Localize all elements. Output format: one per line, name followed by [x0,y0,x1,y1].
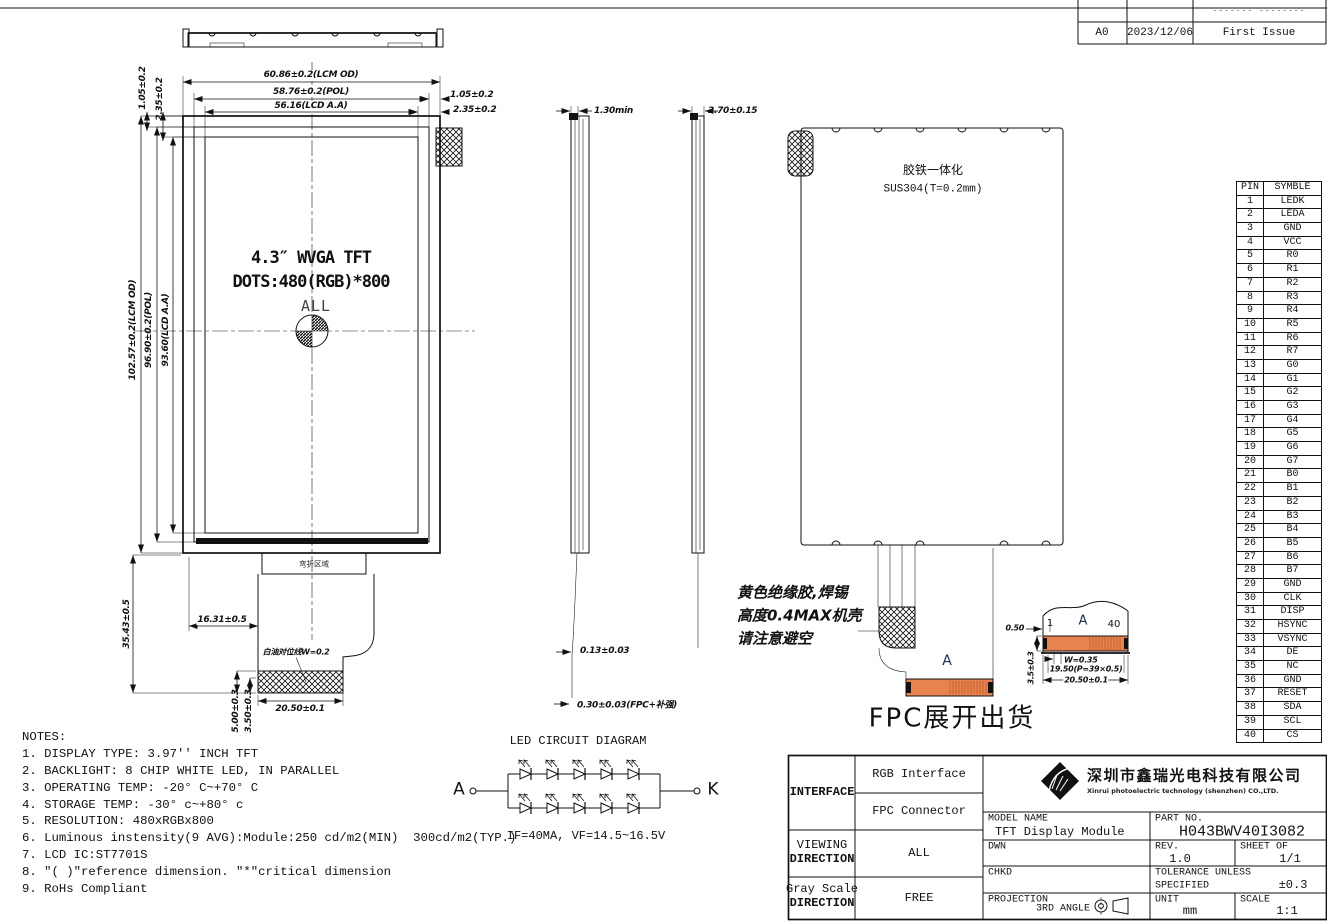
viewing-direction-value: ALL [908,846,930,860]
pin-number: 17 [1237,415,1264,428]
pin-symbol: VSYNC [1264,634,1321,647]
pin-number: 15 [1237,387,1264,400]
pin-number: 38 [1237,702,1264,715]
dim-pol-height: 96.90±0.2(POL) [144,292,154,368]
viewing-direction-label-2: DIRECTION [790,852,855,866]
notes-section: NOTES: 1. DISPLAY TYPE: 3.97'' INCH TFT2… [22,729,516,898]
pin-row: 4 VCC [1237,236,1321,250]
dim-fpc-left-offset: 16.31±0.5 [196,615,247,625]
pin-number: 32 [1237,620,1264,633]
pin-row: 32 HSYNC [1237,619,1321,633]
pin-number: 24 [1237,511,1264,524]
pin-symbol: DISP [1264,606,1321,619]
pin-number: 14 [1237,374,1264,387]
projection-symbol [1095,897,1128,915]
pin-symbol: R3 [1264,292,1321,305]
pin-symbol: B7 [1264,565,1321,578]
pin-row: 28 B7 [1237,564,1321,578]
white-line-note: 白油对位线W=0.2 [262,647,331,658]
pin-row: 2 LEDA [1237,208,1321,222]
pin-row: 29 GND [1237,578,1321,592]
note-line: 7. LCD IC:ST7701S [22,847,516,864]
tolerance-value: ±0.3 [1279,878,1308,892]
pin-number: 20 [1237,456,1264,469]
dim-right-inset-1: 1.05±0.2 [450,90,493,100]
pin-number: 33 [1237,634,1264,647]
pin-number: 36 [1237,675,1264,688]
pin-number: 25 [1237,524,1264,537]
dim-detail-pitch: 19.50(P=39×0.5) [1049,665,1124,674]
dim-fpc-stiffener-thickness: 0.30±0.03(FPC+补强) [577,698,677,711]
pin-row: 35 NC [1237,660,1321,674]
sheet-of-value: 1/1 [1279,852,1301,866]
pin-row: 1 LEDK [1237,195,1321,209]
pin-row: 33 VSYNC [1237,633,1321,647]
note-line: 6. Luminous instensity(9 AVG):Module:250… [22,830,516,847]
pin-row: 17 G4 [1237,414,1321,428]
top-strip-view [183,29,443,47]
pin-table-header: PIN SYMBLE [1237,182,1321,195]
dim-aa-width: 56.16(LCD A.A) [274,101,349,111]
revision-date: 2023/12/06 [1127,27,1193,39]
solder-note-line3: 请注意避空 [737,628,812,649]
unit-value: mm [1183,904,1197,918]
pin-row: 37 RESET [1237,687,1321,701]
bonding-bar [196,538,428,544]
chkd-label: CHKD [988,868,1012,879]
pin-row: 24 B3 [1237,510,1321,524]
screen-spec-line1: 4.3″ WVGA TFT [251,248,371,268]
scale-label: SCALE [1240,895,1270,906]
dim-stiffener-h1: 5.00±0.3 [231,689,241,732]
pin-symbol: SCL [1264,716,1321,729]
note-line: 3. OPERATING TEMP: -20° C~+70° C [22,780,516,797]
material-note-line2: SUS304(T=0.2mm) [883,185,982,196]
engineering-drawing-sheet: ------- -------- A0 2023/12/06 First Iss… [0,0,1327,922]
pin-table: PIN SYMBLE 1 LEDK 2 LEDA 3 GND 4 VCC 5 R… [1236,181,1322,743]
pin-number: 16 [1237,401,1264,414]
section-a-label-back: A [942,654,952,668]
dim-detail-pad-width: W=0.35 [1064,656,1097,665]
viewing-area-label: ALL [301,297,331,315]
pin-number: 9 [1237,305,1264,318]
projection-value: 3RD ANGLE [1036,904,1090,915]
pin-symbol: LEDA [1264,209,1321,222]
pin-symbol: G6 [1264,442,1321,455]
pin-row: 21 B0 [1237,468,1321,482]
pin-number: 3 [1237,223,1264,236]
pin-row: 18 G5 [1237,427,1321,441]
pin-symbol: SDA [1264,702,1321,715]
grayscale-direction-value: FREE [905,891,934,905]
notes-title: NOTES: [22,729,516,746]
pin-number: 37 [1237,688,1264,701]
pin-row: 14 G1 [1237,373,1321,387]
pin-row: 15 G2 [1237,386,1321,400]
pin-number: 2 [1237,209,1264,222]
pin-symbol: LEDK [1264,196,1321,209]
note-line: 1. DISPLAY TYPE: 3.97'' INCH TFT [22,746,516,763]
pin-number: 19 [1237,442,1264,455]
pin-number: 29 [1237,579,1264,592]
pin-symbol: R4 [1264,305,1321,318]
pin-symbol: B4 [1264,524,1321,537]
detail-pin-first: 1 [1047,619,1053,629]
note-line: 8. "( )"reference dimension. "*"critical… [22,864,516,881]
pin-number: 40 [1237,730,1264,743]
pin-row: 23 B2 [1237,496,1321,510]
pin-symbol: R5 [1264,319,1321,332]
pin-symbol: B1 [1264,483,1321,496]
pin-symbol: VCC [1264,237,1321,250]
pin-number: 31 [1237,606,1264,619]
dim-aa-height: 93.60(LCD A.A) [161,294,171,367]
pin-row: 26 B5 [1237,537,1321,551]
pin-number: 26 [1237,538,1264,551]
screen-spec-line2: DOTS:480(RGB)*800 [233,272,390,292]
unit-label: UNIT [1155,895,1179,906]
pin-row: 19 G6 [1237,441,1321,455]
rev-label: REV. [1155,842,1179,853]
pin-symbol: B2 [1264,497,1321,510]
detail-pin-last: 40 [1108,620,1121,630]
material-note-line1: 胶铁一体化 [903,164,963,176]
pin-symbol: B6 [1264,552,1321,565]
pin-number: 30 [1237,593,1264,606]
pin-row: 12 R7 [1237,345,1321,359]
tolerance-label-2: SPECIFIED [1155,881,1209,892]
pin-row: 39 SCL [1237,715,1321,729]
pin-number: 28 [1237,565,1264,578]
pin-row: 9 R4 [1237,304,1321,318]
dim-fpc-thickness: 0.13±0.03 [580,646,629,656]
pin-symbol: R0 [1264,250,1321,263]
tolerance-label-1: TOLERANCE UNLESS [1155,868,1251,879]
model-name-label: MODEL NAME [988,814,1048,825]
side-view-right [678,106,718,648]
revision-rev: A0 [1095,27,1108,39]
pin-symbol: R2 [1264,278,1321,291]
side-view-left [554,106,592,704]
solder-note-line1: 黄色绝缘胶,焊锡 [737,582,848,603]
pin-symbol: R7 [1264,346,1321,359]
grayscale-direction-label-2: DIRECTION [790,896,855,910]
pin-symbol: GND [1264,579,1321,592]
pin-number: 23 [1237,497,1264,510]
pin-symbol: G1 [1264,374,1321,387]
model-name-value: TFT Display Module [995,825,1125,839]
pin-symbol: HSYNC [1264,620,1321,633]
pin-symbol: CLK [1264,593,1321,606]
note-line: 4. STORAGE TEMP: -30° c~+80° c [22,797,516,814]
pin-row: 34 DE [1237,646,1321,660]
pin-row: 30 CLK [1237,592,1321,606]
pin-row: 38 SDA [1237,701,1321,715]
pin-number: 18 [1237,428,1264,441]
hatched-tab [788,131,813,176]
pin-number: 21 [1237,469,1264,482]
corner-hatch-mark [436,128,462,166]
pin-symbol: GND [1264,223,1321,236]
note-line: 5. RESOLUTION: 480xRGBx800 [22,813,516,830]
pin-symbol: G7 [1264,456,1321,469]
pin-row: 11 R6 [1237,332,1321,346]
pin-row: 20 G7 [1237,455,1321,469]
led-anode-label: A [453,782,465,799]
dim-top-inset-2: 2.35±0.2 [155,77,165,120]
pin-number: 35 [1237,661,1264,674]
pin-row: 25 B4 [1237,523,1321,537]
pin-number: 39 [1237,716,1264,729]
pin-number: 22 [1237,483,1264,496]
pin-symbol: G5 [1264,428,1321,441]
pin-number: 27 [1237,552,1264,565]
dwn-label: DWN [988,842,1006,853]
dim-side-right-top: 2.70±0.15 [708,106,757,116]
front-view-outline [134,62,475,693]
pin-row: 13 G0 [1237,359,1321,373]
grayscale-direction-label-1: Gray Scale [786,882,858,896]
dim-lcm-width: 60.86±0.2(LCM OD) [263,70,360,80]
company-name-cn: 深圳市鑫瑞光电科技有限公司 [1087,765,1302,786]
dim-lcm-height: 102.57±0.2(LCM OD) [128,280,138,381]
pin-symbol: CS [1264,730,1321,743]
pin-number: 11 [1237,333,1264,346]
dim-detail-edge-gap: 0.50 [1005,624,1024,633]
pin-row: 5 R0 [1237,249,1321,263]
pin-row: 40 CS [1237,729,1321,743]
pin-symbol: B5 [1264,538,1321,551]
pin-number: 6 [1237,264,1264,277]
led-diagram-title: LED CIRCUIT DIAGRAM [510,735,647,747]
part-no-value: H043BWV40I3082 [1179,824,1305,841]
note-line: 2. BACKLIGHT: 8 CHIP WHITE LED, IN PARAL… [22,763,516,780]
pin-number: 34 [1237,647,1264,660]
detail-connector-strip [1043,636,1128,651]
pin-number: 4 [1237,237,1264,250]
solder-hatch-block [879,607,915,648]
pin-symbol: B0 [1264,469,1321,482]
detail-section-label: A [1079,615,1088,628]
bend-area-label: 弯折区域 [299,559,329,570]
pin-number: 10 [1237,319,1264,332]
pin-number: 13 [1237,360,1264,373]
viewing-direction-label-1: VIEWING [797,838,847,852]
pin-symbol: GND [1264,675,1321,688]
pin-row: 7 R2 [1237,277,1321,291]
pin-row: 8 R3 [1237,291,1321,305]
pin-symbol: G0 [1264,360,1321,373]
rev-value: 1.0 [1169,852,1191,866]
pin-symbol: B3 [1264,511,1321,524]
dim-detail-total-width: 20.50±0.1 [1063,676,1108,685]
fpc-stiffener-hatch [258,671,343,693]
pin-row: 22 B1 [1237,482,1321,496]
pin-row: 31 DISP [1237,605,1321,619]
dim-stiffener-h2: 3.50±0.3 [244,689,254,732]
pin-symbol: DE [1264,647,1321,660]
dim-right-inset-2: 2.35±0.2 [453,105,496,115]
led-spec: IF=40MA, VF=14.5~16.5V [507,830,665,842]
pin-number: 8 [1237,292,1264,305]
dim-top-inset-1: 1.05±0.2 [138,66,148,109]
pin-symbol: RESET [1264,688,1321,701]
pin-number: 12 [1237,346,1264,359]
fpc-ship-note: FPC展开出货 [869,698,1036,735]
sheet-of-label: SHEET OF [1240,842,1288,853]
pin-number: 5 [1237,250,1264,263]
pin-col-header: PIN [1237,182,1264,195]
pin-number: 7 [1237,278,1264,291]
pin-row: 6 R1 [1237,263,1321,277]
dim-fpc-end-width: 20.50±0.1 [275,704,324,714]
pin-row: 16 G3 [1237,400,1321,414]
pin-symbol: G4 [1264,415,1321,428]
scale-value: 1:1 [1276,904,1298,918]
revision-description: First Issue [1223,27,1296,39]
pin-symbol: R6 [1264,333,1321,346]
company-logo [1041,762,1079,800]
solder-note-line2: 高度0.4MAX机壳 [737,605,862,626]
pin-symbol: R1 [1264,264,1321,277]
dim-fpc-length: 35.43±0.5 [122,599,132,648]
note-line: 9. RoHs Compliant [22,881,516,898]
front-view-dimensions [133,76,448,706]
revision-modification-note: ------- -------- [1213,7,1306,16]
led-cathode-label: K [707,782,718,799]
pin-row: 3 GND [1237,222,1321,236]
interface-label: INTERFACE [790,785,855,799]
dim-detail-height: 3.5±0.3 [1027,652,1036,685]
pin-row: 27 B6 [1237,551,1321,565]
pin-row: 10 R5 [1237,318,1321,332]
company-name-en: Xinrui photoelectric technology (shenzhe… [1087,787,1279,795]
dim-pol-width: 58.76±0.2(POL) [272,87,350,97]
pin-symbol: G3 [1264,401,1321,414]
datum-target-symbol [296,315,328,347]
symbol-col-header: SYMBLE [1264,182,1321,195]
interface-value-2: FPC Connector [872,804,966,818]
pin-number: 1 [1237,196,1264,209]
pin-row: 36 GND [1237,674,1321,688]
dim-side-top: 1.30min [594,106,633,116]
interface-value-1: RGB Interface [872,767,966,781]
pin-symbol: NC [1264,661,1321,674]
pin-symbol: G2 [1264,387,1321,400]
